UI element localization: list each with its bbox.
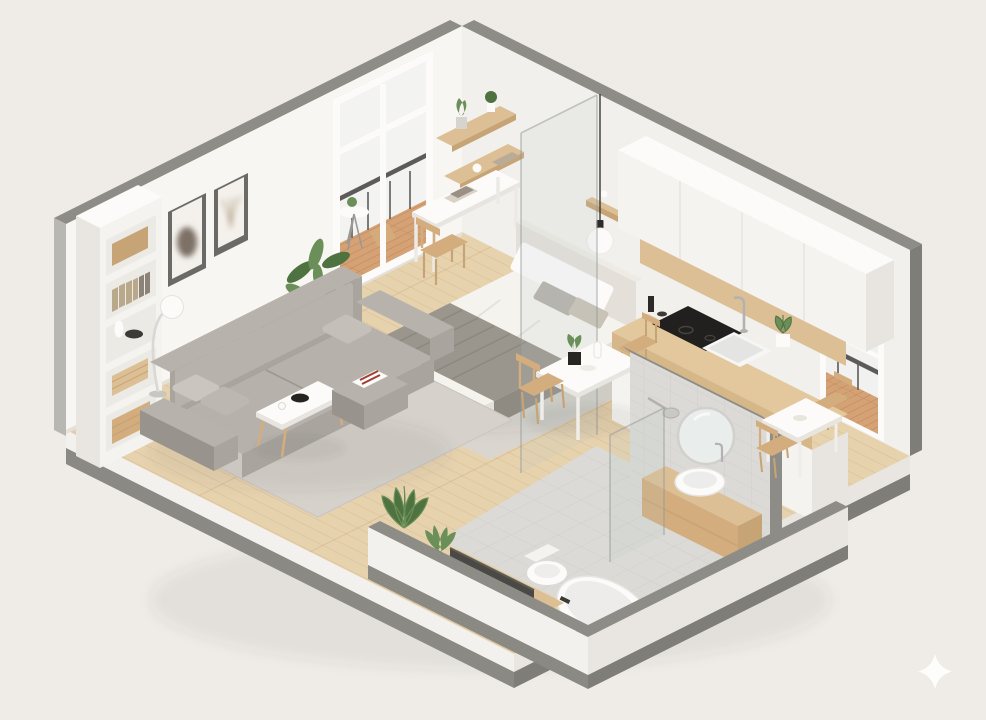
- black-bowl: [125, 330, 143, 339]
- shelf-plant-2: [485, 91, 497, 103]
- white-vase: [115, 321, 124, 338]
- bistro-plant: [347, 197, 357, 207]
- door-mullion: [380, 84, 386, 266]
- isometric-apartment-render: [0, 0, 986, 720]
- kitchen-bottle: [648, 296, 654, 312]
- lamp-globe: [161, 296, 184, 319]
- black-bowl: [291, 394, 309, 403]
- bookshelf-side: [76, 216, 100, 468]
- shelf-plant-pot: [456, 117, 467, 129]
- sink-basin: [683, 472, 717, 489]
- toilet-seat: [534, 564, 560, 578]
- table-plant-pot: [568, 352, 581, 365]
- kitchen-bowl: [657, 312, 667, 317]
- right-wall-end-edge: [910, 244, 922, 456]
- shelf-cup: [473, 164, 482, 173]
- scene-canvas: [0, 0, 986, 720]
- nook-plate: [793, 415, 807, 421]
- table-vase: [594, 342, 601, 358]
- round-mirror: [678, 408, 734, 464]
- table-shadow: [255, 435, 345, 461]
- left-wall-end-face: [54, 218, 66, 436]
- shelf-vase: [601, 191, 608, 198]
- counter-plant-pot: [776, 334, 790, 347]
- table-plate: [580, 365, 596, 371]
- shower-head: [663, 408, 679, 418]
- upper-cabinets-side: [866, 260, 894, 352]
- shelf-plant-pot-2: [487, 102, 495, 112]
- shower-glass: [610, 408, 664, 562]
- cup: [279, 403, 286, 410]
- faucet-base: [740, 329, 748, 333]
- art-heart-image: [177, 227, 197, 257]
